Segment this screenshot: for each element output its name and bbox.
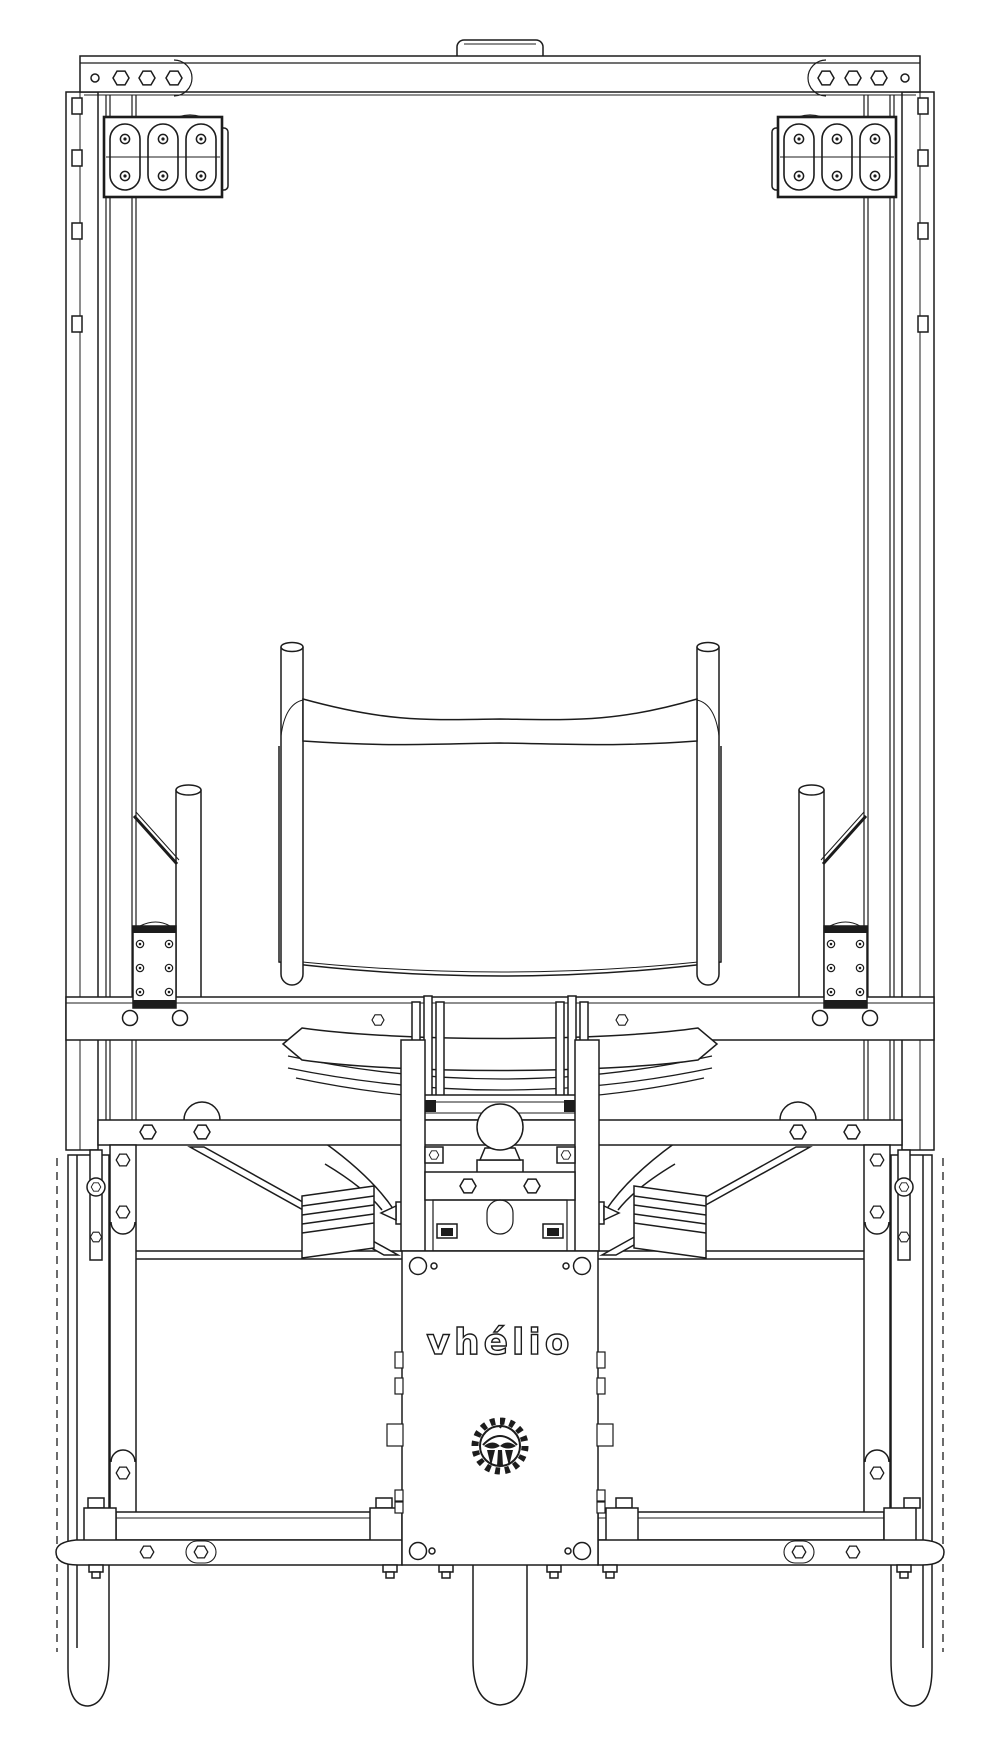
seat-fabric bbox=[279, 746, 721, 976]
roof-beam bbox=[80, 56, 920, 96]
seat-back-tube-right bbox=[697, 643, 719, 986]
left-light-cluster bbox=[104, 115, 228, 197]
hitch-plate bbox=[425, 1172, 575, 1200]
gear-tree-logo-icon bbox=[475, 1421, 525, 1471]
tow-ball-hitch bbox=[477, 1104, 523, 1173]
bottom-rail-lower-left bbox=[56, 1540, 402, 1565]
technical-drawing-page: vhélio bbox=[0, 0, 1008, 1756]
right-motor-box bbox=[634, 1186, 706, 1258]
right-mount-bracket bbox=[824, 922, 867, 1008]
vehicle-rear-view-drawing: vhélio bbox=[0, 0, 1008, 1756]
left-frame-post bbox=[66, 92, 98, 1150]
tow-ball bbox=[477, 1104, 523, 1150]
brand-text: vhélio bbox=[427, 1322, 574, 1363]
seat-back-tube-left bbox=[281, 643, 303, 986]
battery-panel: vhélio bbox=[387, 1251, 613, 1565]
left-motor-box bbox=[302, 1186, 374, 1258]
bottom-rail-lower-right bbox=[598, 1540, 944, 1565]
upper-cross-rail bbox=[66, 997, 934, 1040]
right-light-cluster bbox=[772, 115, 896, 197]
right-frame-post bbox=[902, 92, 934, 1150]
left-mount-bracket bbox=[133, 922, 176, 1008]
